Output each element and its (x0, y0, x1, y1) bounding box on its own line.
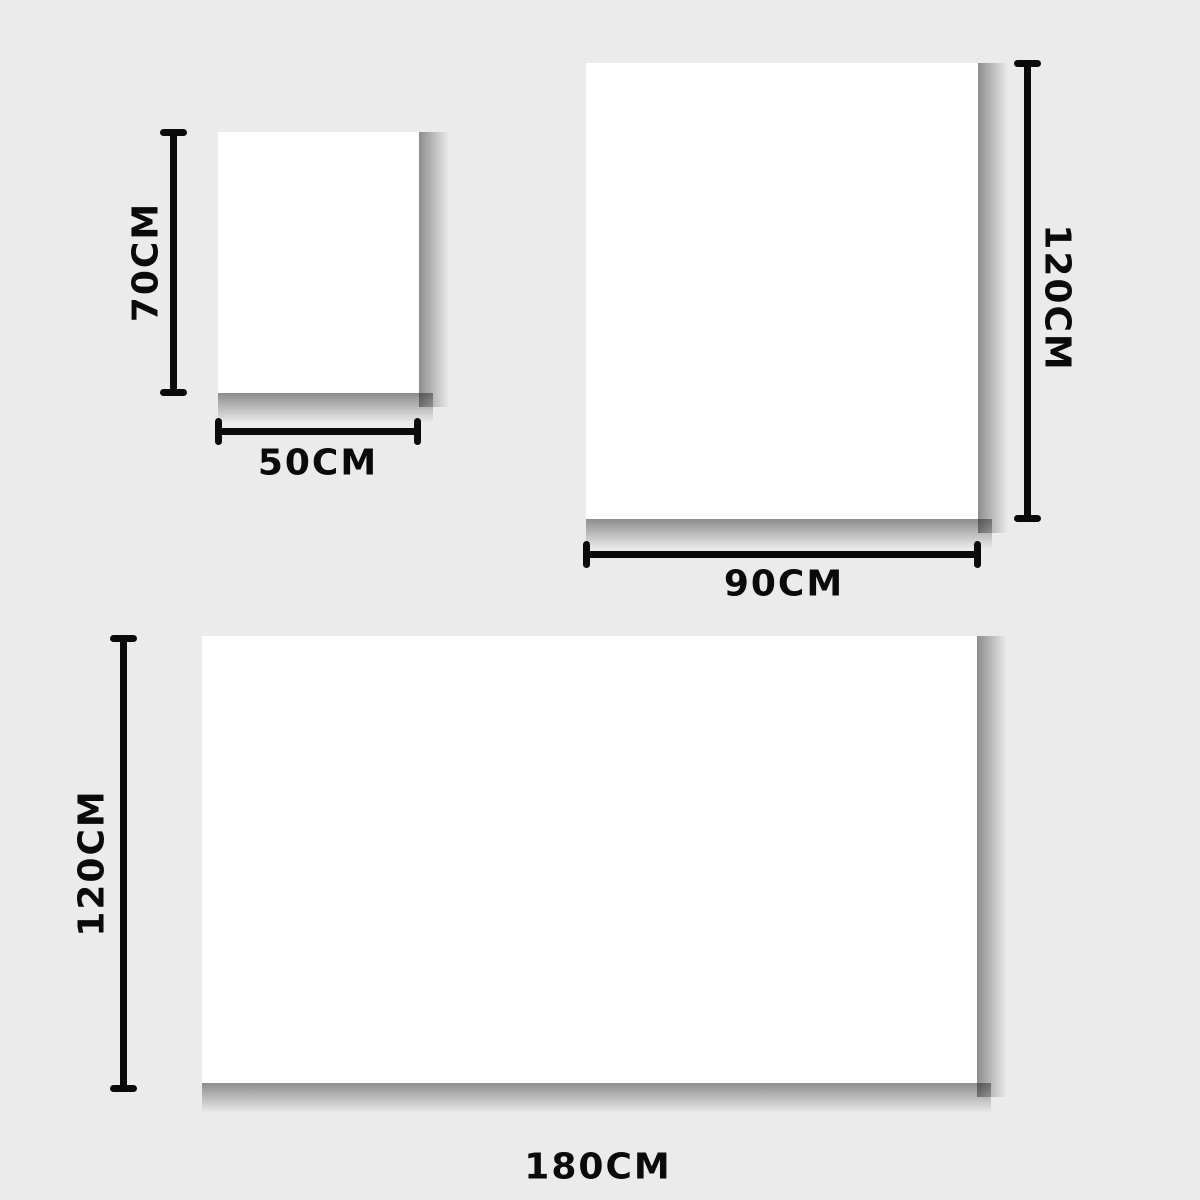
height-dimension-line-90x120 (1024, 63, 1031, 519)
height-dimension-label-180x120: 120CM (72, 789, 113, 936)
height-dimension-label-50x70: 70CM (126, 202, 167, 322)
product-rect-90x120 (586, 63, 978, 519)
width-dimension-line-50x70 (218, 428, 418, 435)
height-dimension-line-180x120 (120, 638, 127, 1089)
product-rect-50x70 (218, 132, 419, 393)
width-dimension-label-180x120: 180CM (524, 1147, 671, 1188)
width-dimension-label-50x70: 50CM (258, 443, 378, 484)
size-comparison-diagram: 70CM 50CM 120CM 90CM 120CM 180CM (0, 0, 1200, 1200)
product-rect-180x120 (202, 636, 977, 1083)
height-dimension-line-50x70 (170, 132, 177, 393)
width-dimension-label-90x120: 90CM (724, 564, 844, 605)
height-dimension-label-90x120: 120CM (1037, 224, 1078, 371)
width-dimension-line-90x120 (586, 551, 978, 558)
